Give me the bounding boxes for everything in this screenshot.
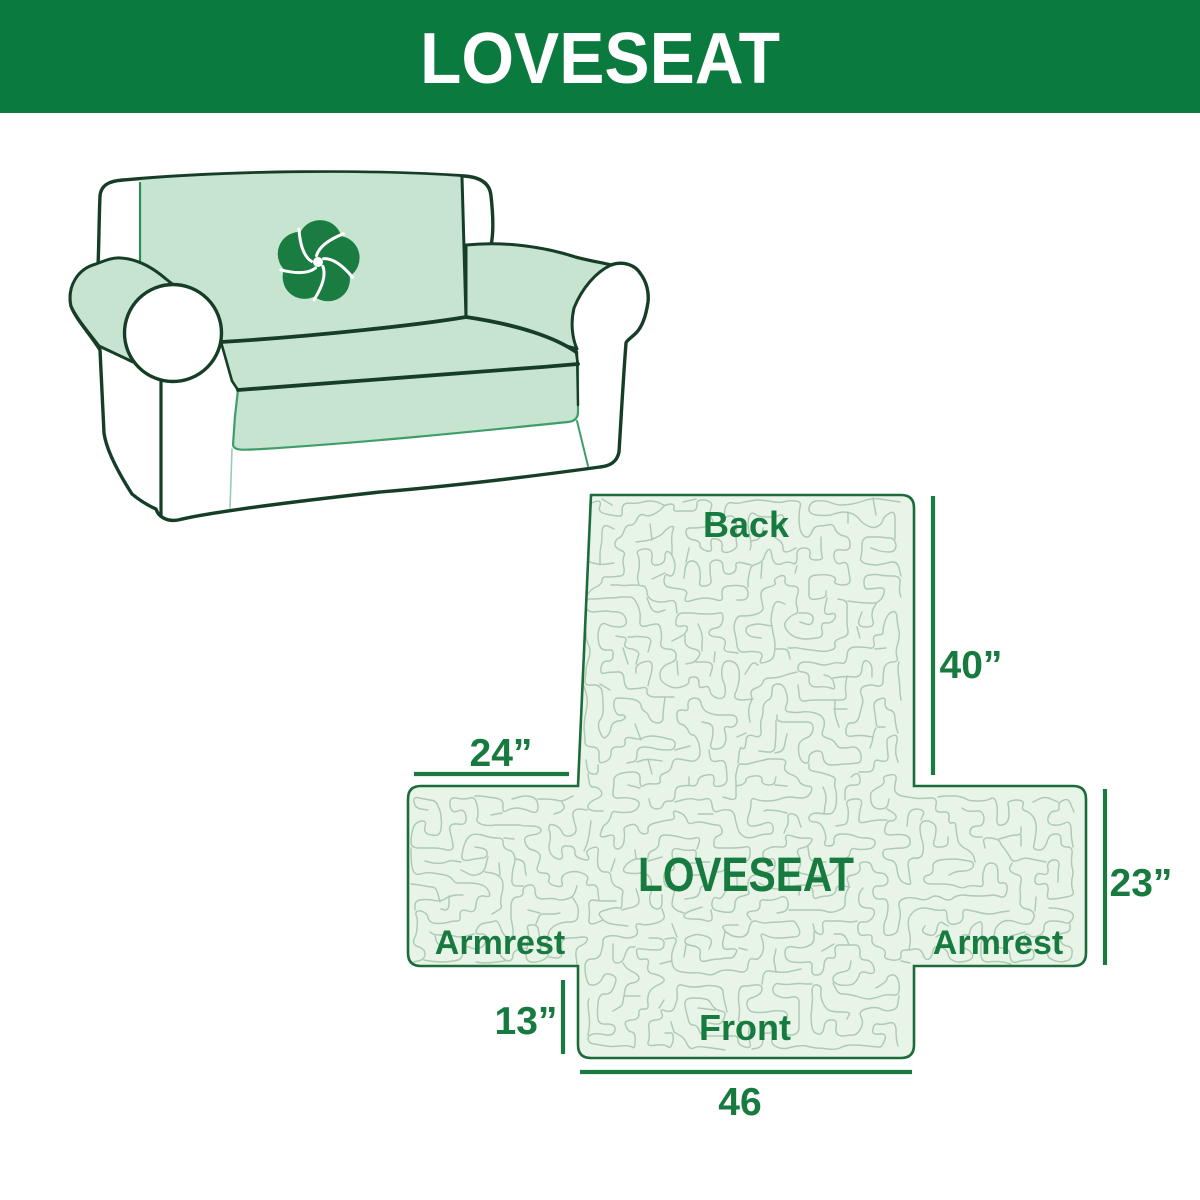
svg-text:24”: 24” — [470, 732, 533, 775]
svg-text:46: 46 — [718, 1081, 761, 1124]
svg-text:40”: 40” — [940, 644, 1003, 687]
svg-text:23”: 23” — [1110, 862, 1173, 905]
svg-text:Armrest: Armrest — [435, 924, 565, 962]
svg-text:LOVESEAT: LOVESEAT — [638, 849, 854, 902]
svg-text:Front: Front — [699, 1007, 791, 1048]
svg-text:LOVESEAT: LOVESEAT — [420, 19, 780, 99]
svg-text:Back: Back — [703, 504, 790, 545]
svg-text:Armrest: Armrest — [933, 924, 1063, 962]
svg-text:13”: 13” — [495, 1000, 558, 1043]
